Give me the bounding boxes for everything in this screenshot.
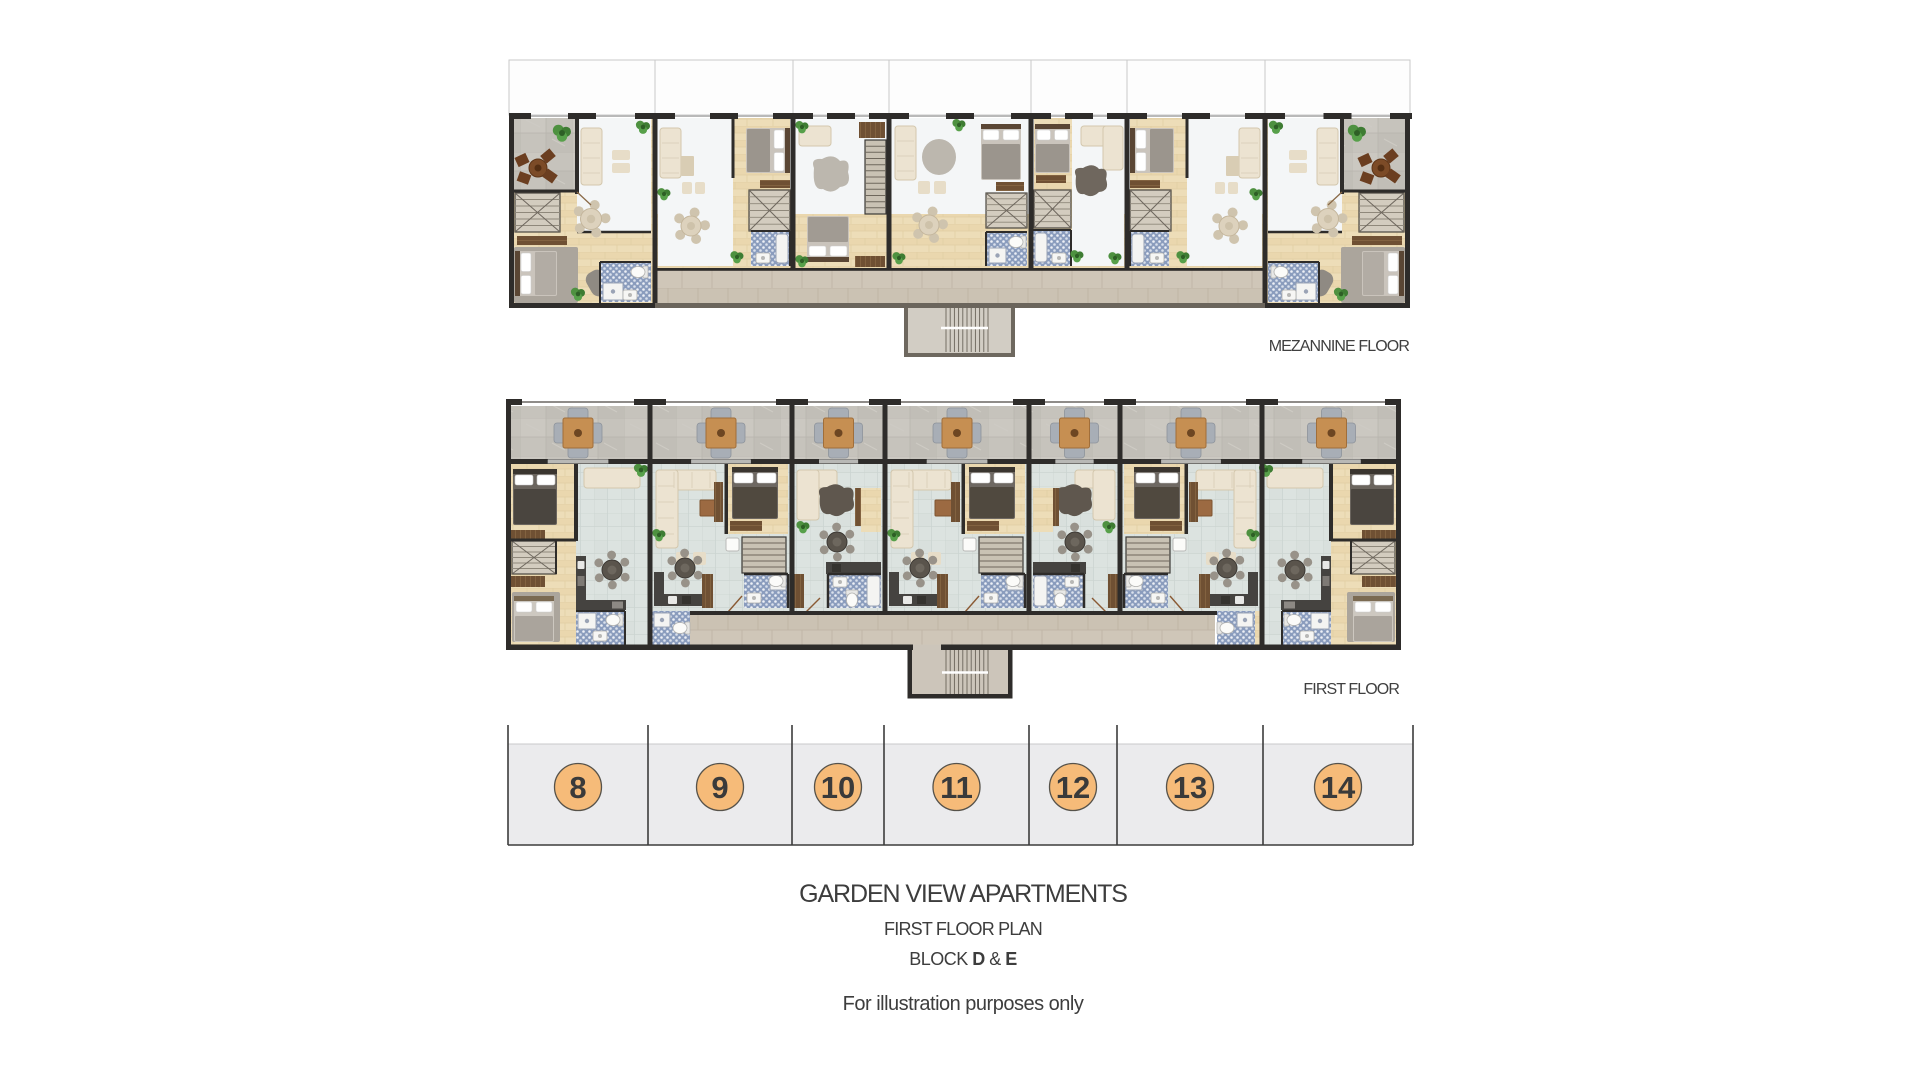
svg-text:14: 14 [1321,770,1356,805]
svg-text:8: 8 [569,770,586,805]
svg-text:FIRST FLOOR: FIRST FLOOR [1303,681,1399,698]
svg-text:9: 9 [711,770,728,805]
svg-text:12: 12 [1056,770,1090,805]
svg-text:GARDEN VIEW APARTMENTS: GARDEN VIEW APARTMENTS [799,880,1127,908]
svg-text:FIRST FLOOR PLAN: FIRST FLOOR PLAN [884,919,1042,939]
svg-text:10: 10 [821,770,855,805]
svg-text:BLOCK D & E: BLOCK D & E [909,949,1017,969]
svg-text:13: 13 [1173,770,1207,805]
svg-text:For illustration purposes only: For illustration purposes only [843,993,1084,1015]
svg-text:MEZANNINE FLOOR: MEZANNINE FLOOR [1269,338,1410,355]
svg-text:11: 11 [940,770,973,805]
